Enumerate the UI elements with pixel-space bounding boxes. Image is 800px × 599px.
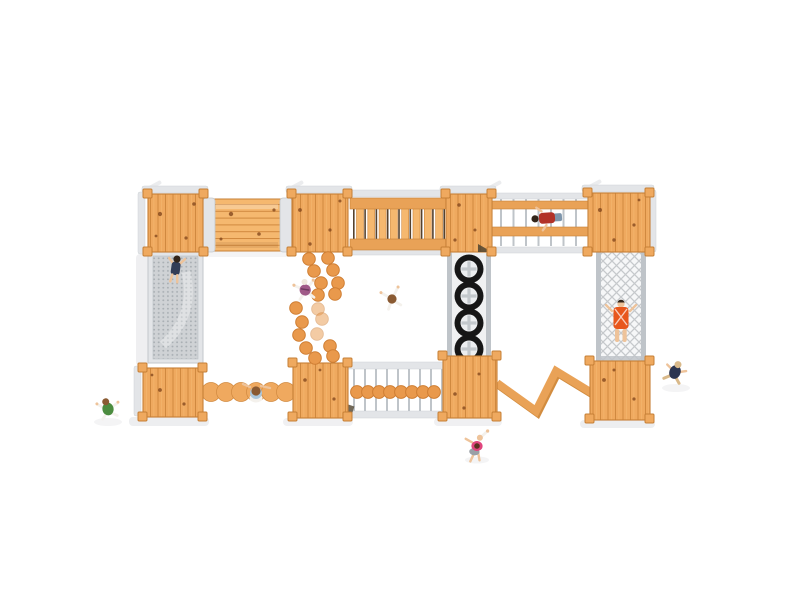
playground-scene-svg: [0, 0, 800, 599]
wood-knot: [328, 228, 331, 231]
corner-post: [343, 247, 352, 256]
stepping-stone: [309, 352, 322, 365]
stepping-stone: [303, 253, 316, 266]
playground-render: [0, 0, 800, 599]
corner-post: [645, 356, 654, 365]
wood-knot: [158, 212, 162, 216]
wood-knot: [229, 212, 233, 216]
wood-knot: [184, 236, 187, 239]
platform-bottom-right: [590, 361, 650, 420]
wood-knot: [332, 397, 335, 400]
stepping-stone: [290, 302, 303, 315]
tire: [455, 255, 484, 284]
corner-post: [645, 247, 654, 256]
wood-knot: [632, 397, 635, 400]
net-rail-right: [641, 250, 646, 362]
net-rail-left: [596, 250, 601, 362]
corner-post: [438, 412, 447, 421]
corner-post: [492, 351, 501, 360]
handrail-left-of-platform-a: [138, 192, 145, 254]
wood-knot: [308, 242, 311, 245]
wood-knot: [192, 202, 196, 206]
corner-post: [288, 412, 297, 421]
stepping-stone: [308, 265, 321, 278]
child-by-stepping-stones: [292, 277, 319, 301]
tire-rail-left: [447, 252, 452, 362]
child-torso: [539, 212, 556, 224]
stepping-stone: [293, 329, 306, 342]
corner-post: [343, 189, 352, 198]
corner-post: [143, 247, 152, 256]
wood-knot: [303, 378, 307, 382]
bridge-disc: [428, 386, 441, 399]
stepping-stone: [312, 289, 325, 302]
child-head: [251, 386, 260, 395]
corner-post: [438, 351, 447, 360]
disc-bridge-rail-top: [344, 362, 446, 369]
wood-knot: [158, 388, 162, 392]
wood-knot: [298, 208, 302, 212]
disc-bridge: [343, 362, 446, 418]
corner-post: [583, 188, 592, 197]
wood-knot: [457, 203, 461, 207]
corner-post: [583, 247, 592, 256]
corner-post: [138, 363, 147, 372]
stepping-stone: [316, 313, 329, 326]
wood-knot: [319, 369, 322, 372]
wood-knot: [182, 402, 185, 405]
shadow-child: [662, 384, 690, 392]
zigzag-balance-beam: [497, 371, 594, 413]
corner-post: [198, 412, 207, 421]
rung-bridge-beam-top: [350, 198, 446, 209]
tunnel-shade: [216, 242, 278, 248]
child-near-right-platform: [662, 358, 689, 385]
corner-post: [343, 412, 352, 421]
stepping-stones: [290, 252, 345, 365]
wood-knot: [339, 200, 342, 203]
wood-knot: [453, 392, 457, 396]
corner-post: [492, 412, 501, 421]
wood-knot: [257, 232, 261, 236]
wood-knot: [155, 235, 158, 238]
wood-knot: [632, 223, 635, 226]
corner-post: [198, 363, 207, 372]
stepping-stone: [311, 328, 324, 341]
child-leg: [623, 329, 627, 342]
tire-climber: [447, 252, 491, 364]
rung-bridge: [346, 190, 450, 255]
tire: [455, 282, 484, 311]
tunnel-band-left: [203, 198, 215, 252]
corner-post: [199, 247, 208, 256]
wood-knot: [598, 208, 602, 212]
wood-knot: [220, 238, 223, 241]
stepping-stone: [329, 288, 342, 301]
shadow-below-tunnel: [205, 251, 293, 257]
wood-knot: [462, 406, 465, 409]
corner-post: [143, 189, 152, 198]
tunnel-band-right: [280, 198, 292, 252]
corner-post: [441, 189, 450, 198]
stepping-stone: [296, 316, 309, 329]
tire-rail-right: [486, 252, 491, 362]
child-leg: [615, 329, 619, 342]
rung-bridge-rail-top: [346, 190, 450, 197]
corner-post: [487, 247, 496, 256]
child-head: [301, 278, 308, 285]
beam-bridge-beam-lower: [492, 227, 588, 236]
wood-knot: [602, 378, 606, 382]
corner-post: [645, 414, 654, 423]
corner-post: [287, 189, 296, 198]
tire: [455, 309, 484, 338]
corner-post: [487, 189, 496, 198]
child-bottom-left: [95, 396, 122, 420]
wood-knot: [478, 373, 481, 376]
handrail-right-of-platform-g: [650, 190, 656, 252]
wood-knot: [453, 238, 456, 241]
platform-top-center: [446, 194, 492, 252]
corner-post: [585, 356, 594, 365]
stepping-stone: [327, 264, 340, 277]
handrail-above-platform-g: [582, 185, 654, 192]
platform-bottom-center: [443, 356, 497, 418]
disc-bridge-discs: [351, 386, 441, 399]
corner-post: [288, 358, 297, 367]
double-beam-bridge: [488, 193, 590, 253]
shadow-child: [465, 457, 489, 464]
net-bottom-anchor: [596, 356, 646, 361]
stepping-stone: [322, 252, 335, 265]
platform-top-mid-left: [292, 194, 348, 252]
tire-cross-h: [462, 267, 477, 270]
wood-knot: [612, 238, 615, 241]
wood-knot: [151, 374, 154, 377]
log-tunnel-bridge: [203, 198, 292, 252]
corner-post: [645, 188, 654, 197]
handrail-left-of-platform-c: [134, 366, 141, 416]
tire-cross-h: [462, 294, 477, 297]
stepping-stone: [327, 350, 340, 363]
stepping-stone: [315, 277, 328, 290]
stepping-stone: [300, 342, 313, 355]
corner-post: [287, 247, 296, 256]
wood-knot: [474, 229, 477, 232]
wood-knot: [613, 369, 616, 372]
tire-cross-h: [462, 321, 477, 324]
beam-bridge-rail-bottom: [488, 247, 590, 253]
wood-knot: [272, 208, 275, 211]
corner-post: [343, 358, 352, 367]
child-center: [379, 285, 405, 310]
beam-bridge-rail-top: [488, 193, 590, 199]
disc-bridge-rail-bottom: [344, 411, 446, 418]
tunnel-highlight: [216, 204, 278, 209]
rung-bridge-beam-bottom: [350, 239, 446, 250]
tire-cross-h: [462, 347, 477, 350]
corner-post: [138, 412, 147, 421]
wood-knot: [638, 199, 641, 202]
platform-top-right: [588, 193, 650, 252]
shadow-left-of-mesh: [136, 254, 148, 366]
corner-post: [585, 414, 594, 423]
shadow-child: [94, 418, 122, 426]
corner-post: [199, 189, 208, 198]
corner-post: [441, 247, 450, 256]
beam-bridge-beam-upper: [492, 201, 588, 209]
